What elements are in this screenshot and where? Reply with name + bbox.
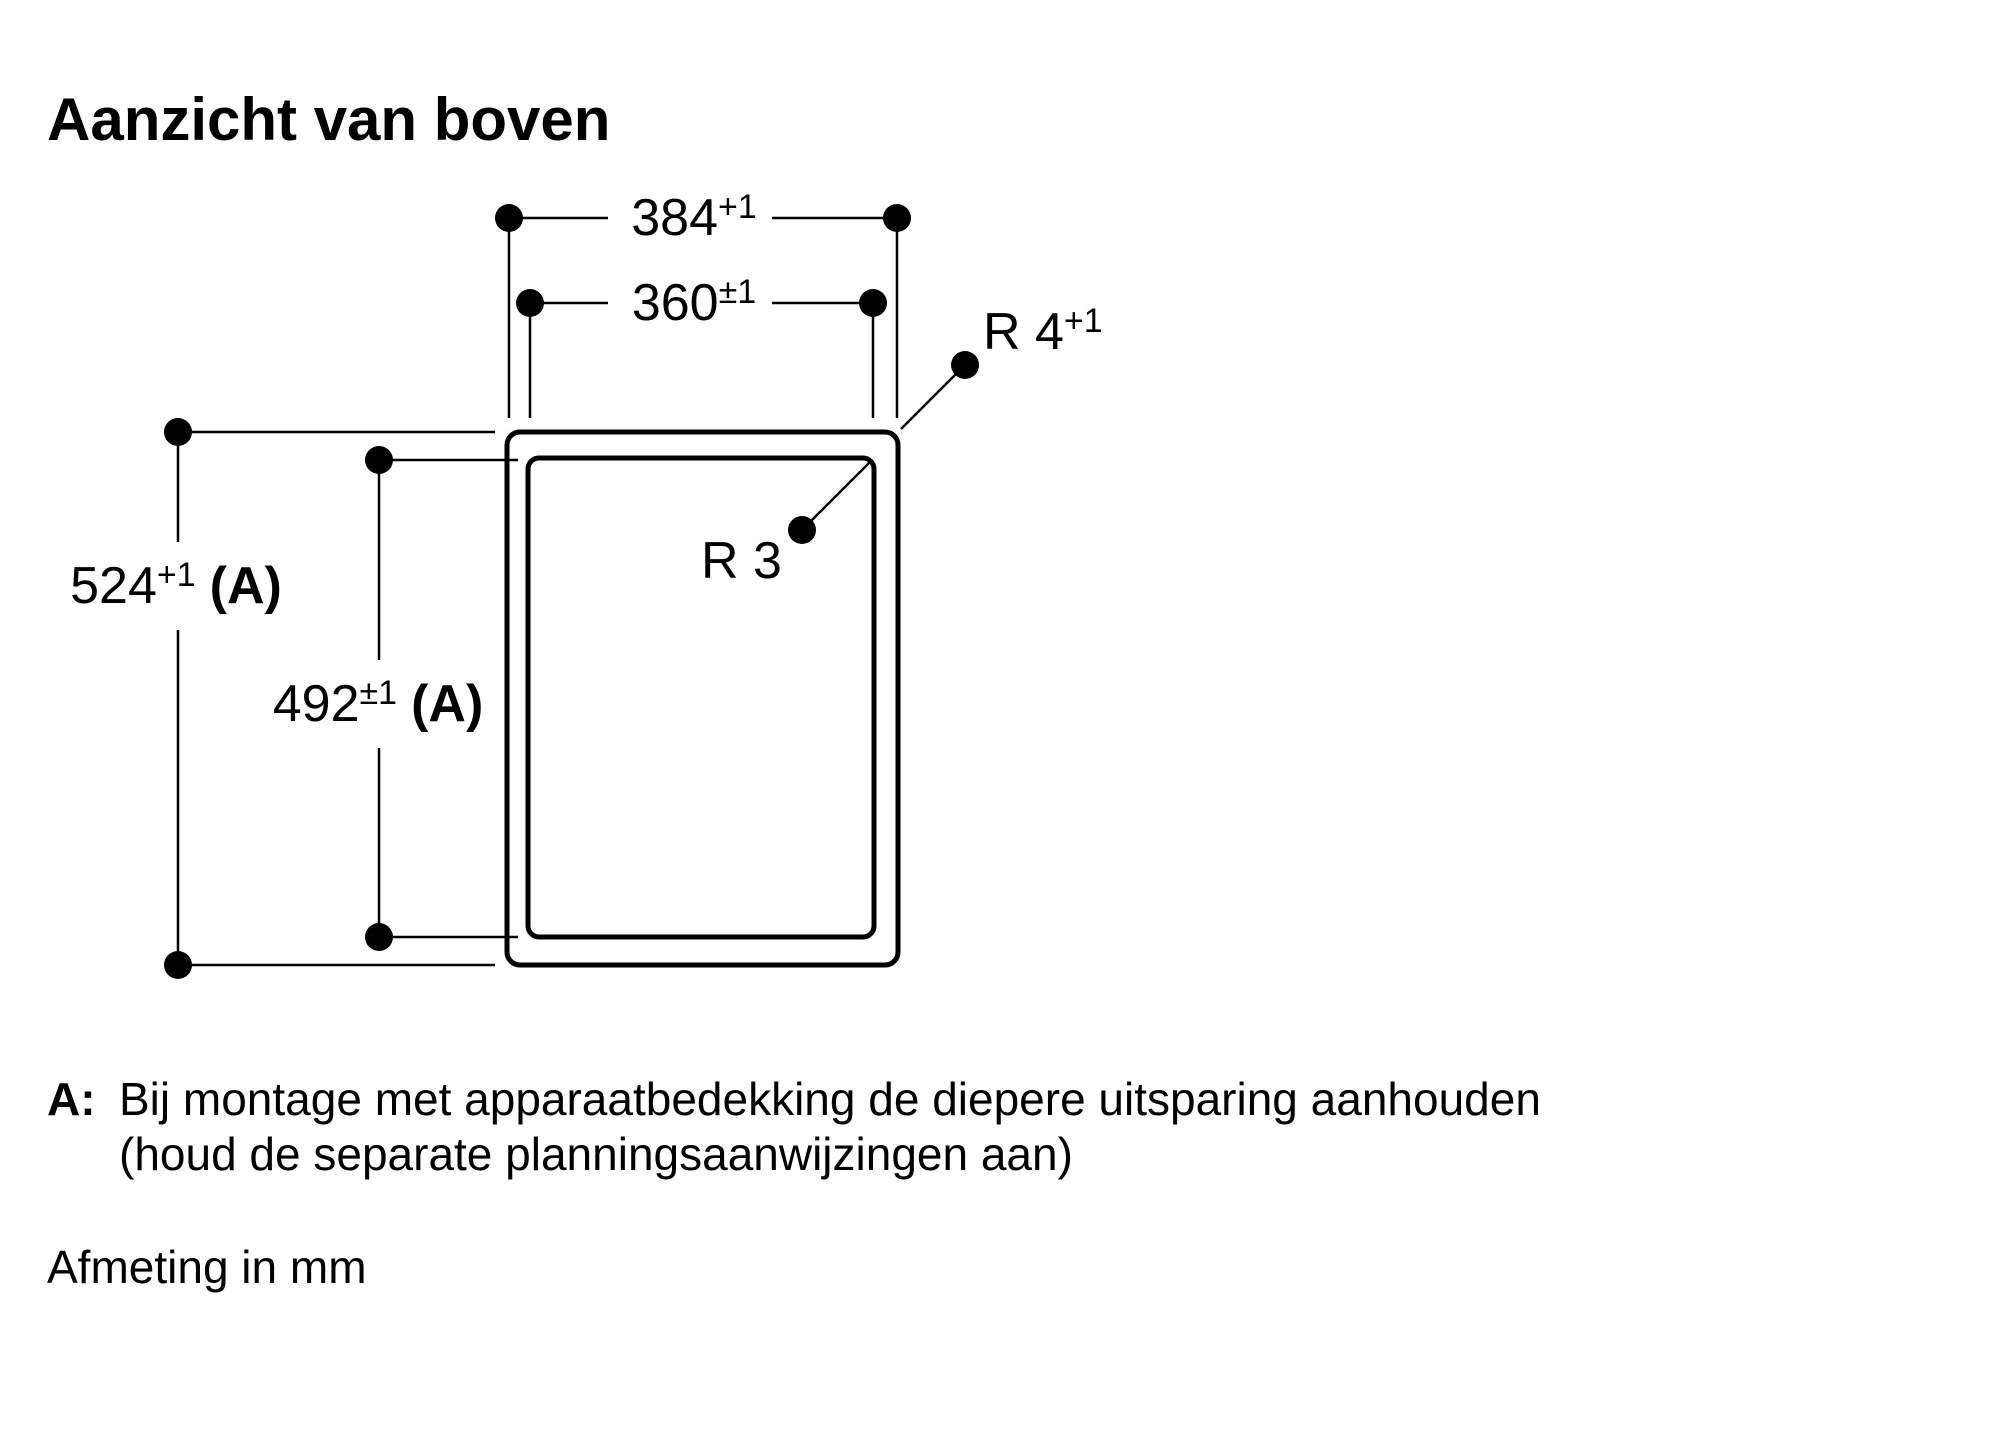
dim-value: R 4	[983, 303, 1064, 361]
page-title: Aanzicht van boven	[47, 85, 610, 154]
inner-cutout-rect	[528, 458, 874, 937]
leader-dot-r4	[951, 351, 979, 379]
dim-note-a: (A)	[210, 557, 282, 615]
dim-label-width-outer: 384+1	[623, 188, 765, 248]
dim-492-dot-top	[365, 446, 393, 474]
footnote-marker: A:	[47, 1072, 96, 1127]
installation-drawing-page: Aanzicht van boven 384+1 360±1 524+1(A) …	[0, 0, 2000, 1452]
dim-492-dot-bottom	[365, 923, 393, 951]
footnote-line-1: Bij montage met apparaatbedekking de die…	[119, 1072, 1541, 1127]
dim-360-dot-left	[516, 289, 544, 317]
footnote-text: Bij montage met apparaatbedekking de die…	[119, 1072, 1541, 1182]
dim-label-width-inner: 360±1	[624, 273, 764, 333]
dim-label-height-outer: 524+1(A)	[62, 556, 290, 616]
dim-value: 492	[273, 675, 360, 733]
dim-value: 384	[631, 189, 718, 247]
dim-note-a: (A)	[411, 675, 483, 733]
dim-384-dot-right	[883, 204, 911, 232]
dim-label-height-inner: 492±1(A)	[265, 674, 492, 734]
dim-384-dot-left	[495, 204, 523, 232]
radius-label-inner: R 3	[701, 531, 782, 591]
dim-tolerance: +1	[157, 556, 196, 594]
dim-tolerance: +1	[1064, 302, 1103, 340]
dim-524-dot-top	[164, 418, 192, 446]
dim-360-dot-right	[859, 289, 887, 317]
radius-label-outer: R 4+1	[983, 302, 1103, 362]
footnote-line-2: (houd de separate planningsaanwijzingen …	[119, 1127, 1541, 1182]
dim-value: R 3	[701, 532, 782, 590]
dim-value: 360	[632, 274, 719, 332]
dim-tolerance: ±1	[360, 674, 398, 712]
dim-tolerance: ±1	[719, 273, 757, 311]
dim-tolerance: +1	[718, 188, 757, 226]
dim-value: 524	[70, 557, 157, 615]
units-note: Afmeting in mm	[47, 1240, 367, 1294]
leader-dot-r3	[788, 516, 816, 544]
dim-524-dot-bottom	[164, 951, 192, 979]
